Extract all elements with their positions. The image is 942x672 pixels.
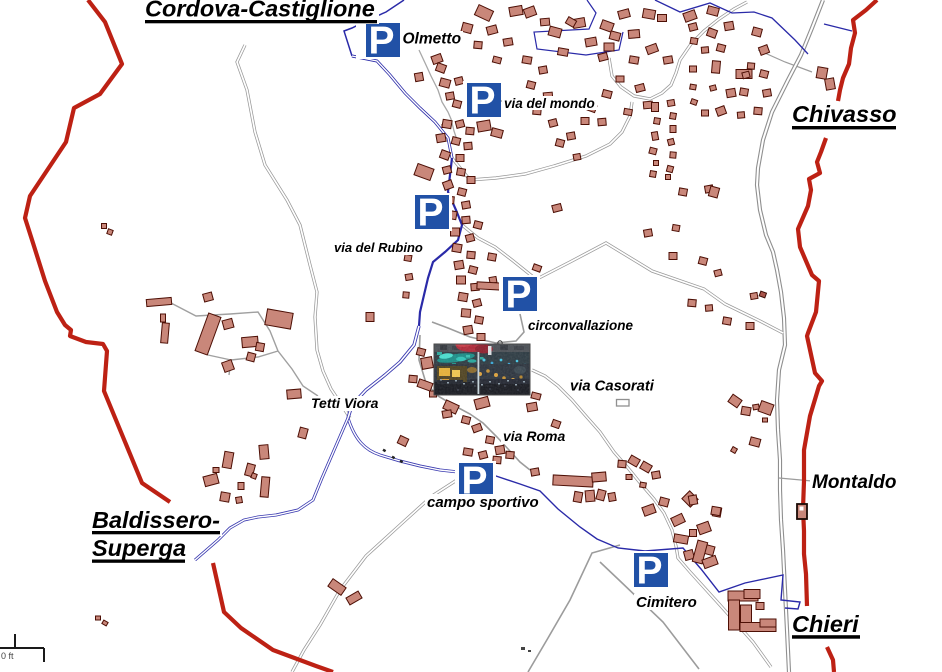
svg-text:Olmetto: Olmetto	[403, 31, 462, 48]
svg-text:Montaldo: Montaldo	[812, 472, 896, 493]
svg-text:Cimitero: Cimitero	[636, 594, 697, 611]
svg-text:P: P	[469, 80, 495, 123]
svg-text:Superga: Superga	[92, 535, 186, 561]
svg-text:P: P	[636, 550, 662, 593]
svg-text:P: P	[417, 192, 443, 235]
svg-text:0 ft: 0 ft	[1, 651, 14, 661]
svg-text:via del Rubino: via del Rubino	[334, 240, 423, 255]
svg-text:via del mondo: via del mondo	[504, 96, 595, 111]
svg-text:circonvallazione: circonvallazione	[528, 318, 634, 333]
svg-text:via Casorati: via Casorati	[570, 379, 655, 395]
svg-text:Tetti Viora: Tetti Viora	[311, 395, 379, 411]
svg-text:P: P	[368, 20, 394, 63]
svg-text:Cordova-Castiglione: Cordova-Castiglione	[145, 0, 375, 22]
svg-text:Chieri: Chieri	[792, 611, 859, 637]
svg-text:via Roma: via Roma	[503, 428, 565, 444]
svg-text:P: P	[505, 274, 531, 317]
svg-text:Baldissero-: Baldissero-	[92, 507, 220, 533]
svg-text:campo sportivo: campo sportivo	[427, 494, 539, 511]
svg-text:Chivasso: Chivasso	[792, 101, 897, 127]
